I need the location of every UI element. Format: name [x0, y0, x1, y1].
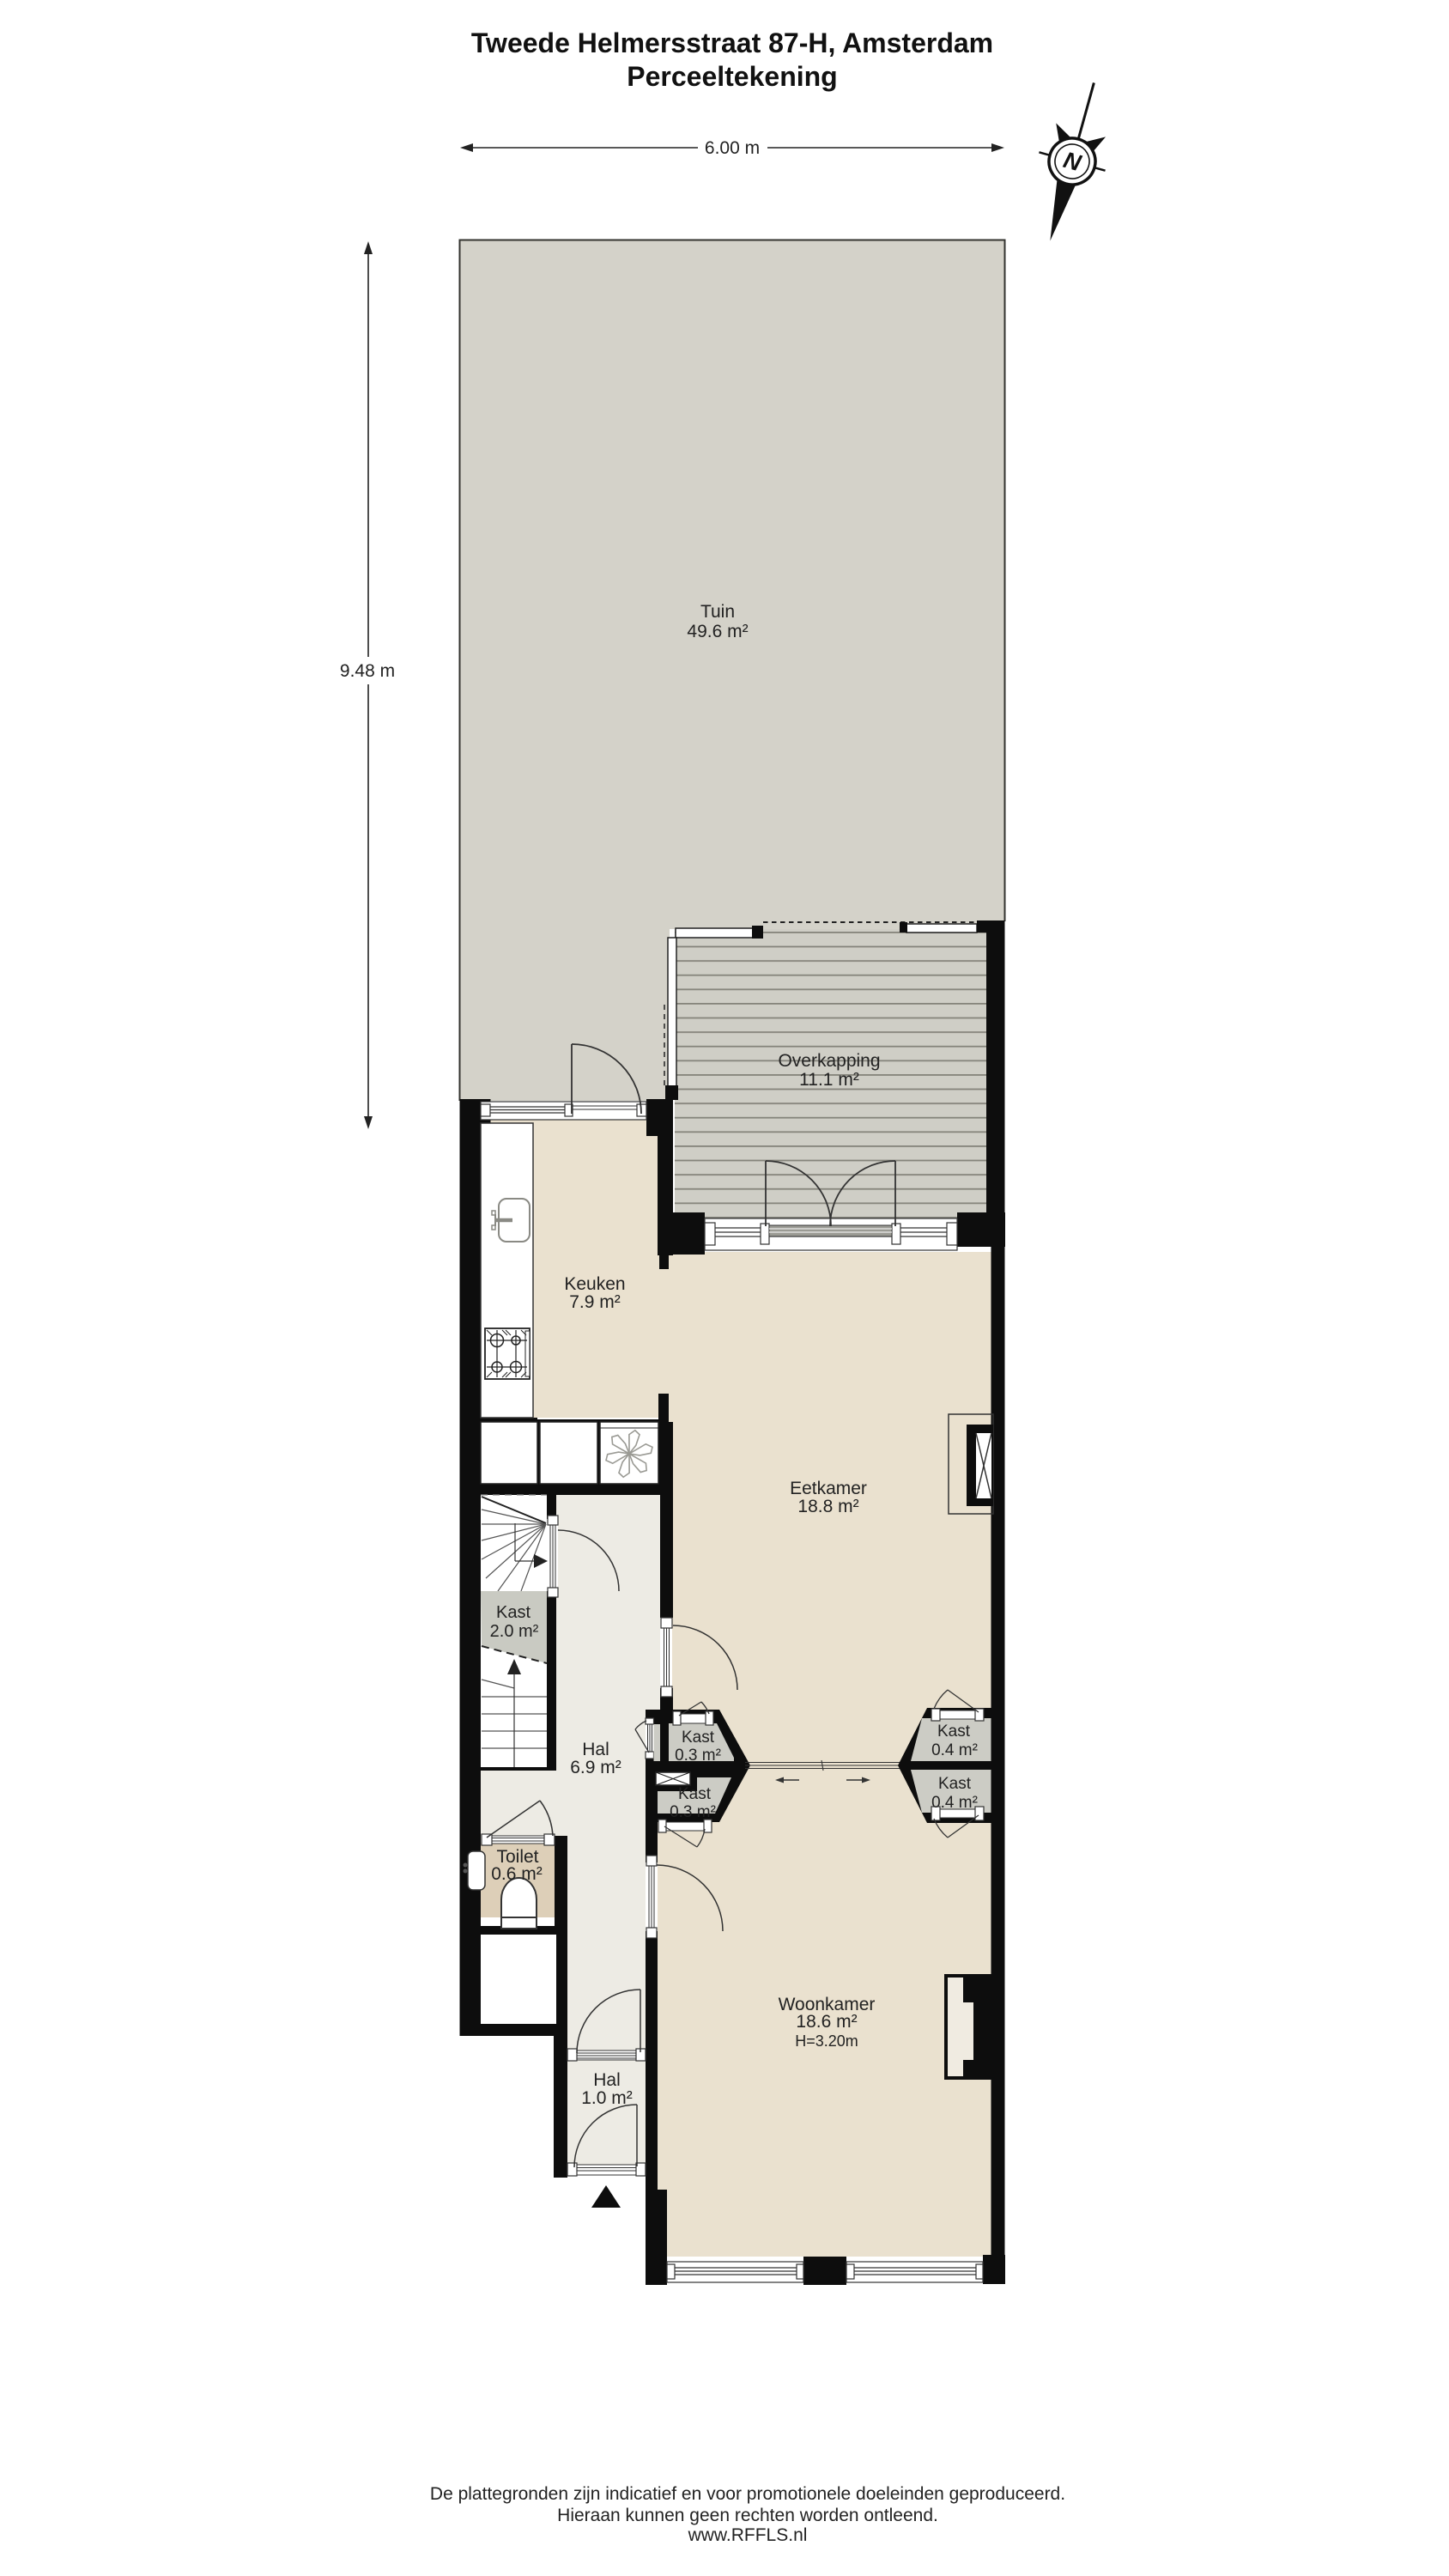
- svg-text:49.6 m²: 49.6 m²: [687, 622, 748, 641]
- svg-text:0.6 m²: 0.6 m²: [491, 1864, 543, 1884]
- svg-text:De plattegronden zijn indicati: De plattegronden zijn indicatief en voor…: [430, 2484, 1065, 2504]
- svg-text:www.RFFLS.nl: www.RFFLS.nl: [688, 2525, 808, 2545]
- svg-text:Kast: Kast: [682, 1728, 715, 1747]
- svg-text:18.8 m²: 18.8 m²: [797, 1497, 858, 1516]
- svg-text:Kast: Kast: [678, 1785, 712, 1803]
- svg-text:Hieraan kunnen geen rechten wo: Hieraan kunnen geen rechten worden ontle…: [557, 2506, 938, 2525]
- svg-text:Kast: Kast: [937, 1722, 971, 1741]
- svg-text:0.4 m²: 0.4 m²: [931, 1794, 978, 1812]
- svg-text:18.6 m²: 18.6 m²: [796, 2012, 857, 2032]
- svg-text:Tweede Helmersstraat 87-H, Ams: Tweede Helmersstraat 87-H, Amsterdam: [471, 27, 993, 58]
- svg-text:0.3 m²: 0.3 m²: [670, 1803, 716, 1821]
- svg-text:H=3.20m: H=3.20m: [795, 2032, 858, 2050]
- svg-text:Tuin: Tuin: [700, 602, 735, 622]
- svg-text:0.4 m²: 0.4 m²: [931, 1741, 978, 1759]
- svg-text:6.00 m: 6.00 m: [705, 138, 760, 158]
- svg-text:Hal: Hal: [593, 2070, 621, 2090]
- svg-text:Perceeltekening: Perceeltekening: [627, 61, 837, 92]
- svg-text:Hal: Hal: [582, 1740, 609, 1759]
- svg-text:6.9 m²: 6.9 m²: [570, 1758, 621, 1777]
- svg-text:2.0 m²: 2.0 m²: [490, 1622, 539, 1641]
- svg-text:Overkapping: Overkapping: [778, 1051, 880, 1071]
- svg-text:Kast: Kast: [938, 1775, 972, 1793]
- svg-text:0.3 m²: 0.3 m²: [675, 1747, 721, 1765]
- svg-text:7.9 m²: 7.9 m²: [569, 1292, 621, 1312]
- svg-text:1.0 m²: 1.0 m²: [581, 2088, 633, 2108]
- svg-text:9.48 m: 9.48 m: [340, 661, 395, 681]
- svg-text:11.1 m²: 11.1 m²: [799, 1070, 859, 1090]
- svg-text:Eetkamer: Eetkamer: [790, 1479, 867, 1498]
- svg-text:Keuken: Keuken: [564, 1274, 625, 1294]
- svg-text:Kast: Kast: [496, 1603, 530, 1622]
